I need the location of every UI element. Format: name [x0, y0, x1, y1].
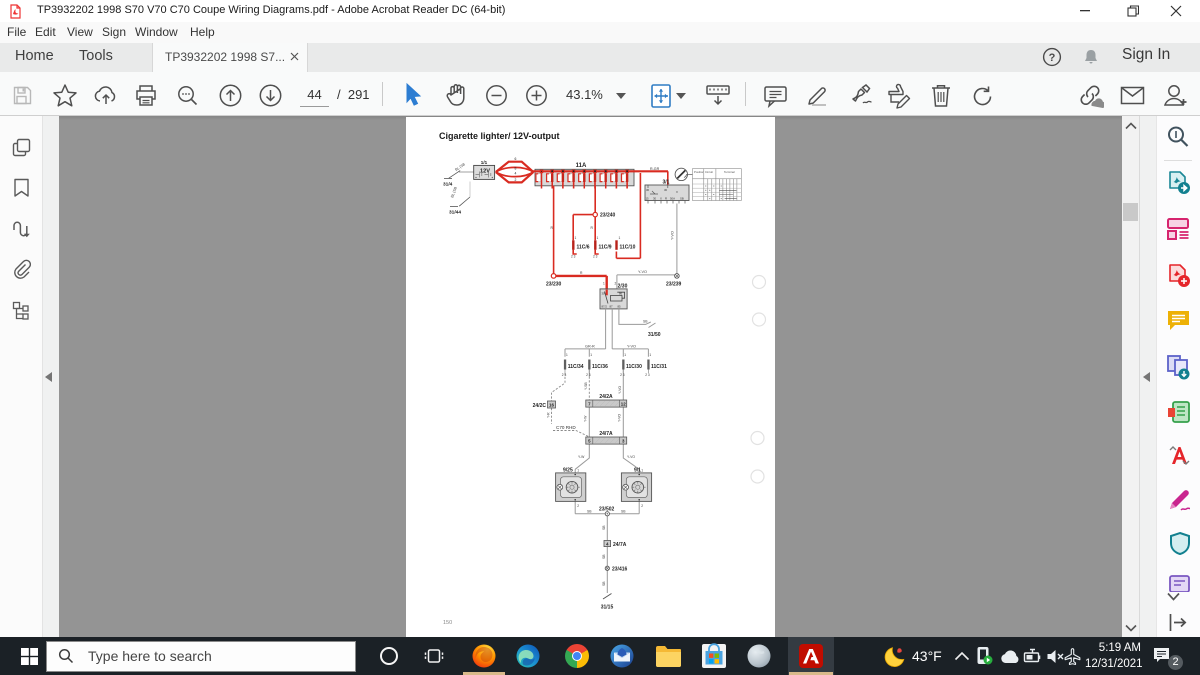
svg-text:30: 30: [602, 292, 606, 296]
svg-text:15: 15: [646, 197, 650, 201]
svg-text:11C/31: 11C/31: [651, 364, 667, 370]
svg-text:24/7A: 24/7A: [599, 431, 613, 437]
svg-text:Y-VO: Y-VO: [618, 414, 622, 422]
svg-text:R-GR: R-GR: [650, 167, 660, 171]
svg-text:150: 150: [443, 620, 452, 626]
svg-text:1: 1: [590, 353, 592, 357]
svg-text:Terminal: Terminal: [724, 170, 735, 174]
svg-text:12: 12: [621, 402, 626, 407]
svg-text:2 3: 2 3: [586, 373, 591, 377]
svg-text:Position: Position: [694, 170, 704, 174]
svg-text:50A: 50A: [670, 197, 675, 201]
svg-text:Y-VO: Y-VO: [627, 344, 636, 348]
svg-text:Y-VO: Y-VO: [638, 270, 647, 274]
svg-text:SB: SB: [587, 510, 592, 514]
svg-text:SB: SB: [602, 581, 606, 586]
svg-text:SB: SB: [680, 197, 684, 201]
svg-text:Y-W: Y-W: [584, 415, 588, 422]
svg-text:2 3: 2 3: [593, 255, 598, 259]
svg-text:11C/34: 11C/34: [568, 364, 584, 370]
svg-text:R: R: [665, 197, 667, 201]
svg-text:30: 30: [664, 188, 668, 192]
svg-text:Circuit: Circuit: [705, 170, 713, 174]
svg-text:11C/36: 11C/36: [592, 364, 608, 370]
svg-text:Cigarette lighter/ 12V-output: Cigarette lighter/ 12V-output: [439, 131, 560, 141]
svg-text:2: 2: [577, 504, 579, 508]
svg-text:BL (SB: BL (SB: [454, 162, 466, 172]
svg-text:Y-W: Y-W: [578, 455, 585, 459]
svg-text:1: 1: [577, 469, 579, 473]
svg-text:23/230: 23/230: [546, 282, 562, 288]
svg-text:23/239: 23/239: [666, 282, 682, 288]
svg-text:23/502: 23/502: [599, 507, 615, 513]
svg-text:C70 RHD: C70 RHD: [556, 425, 576, 430]
svg-text:16: 16: [549, 403, 554, 408]
svg-text:30: 30: [653, 197, 657, 201]
svg-text:Y-VO: Y-VO: [627, 455, 635, 459]
svg-text:BL (SB: BL (SB: [450, 186, 458, 199]
svg-text:Y-VO: Y-VO: [618, 386, 622, 394]
svg-text:2: 2: [515, 178, 517, 182]
svg-text:2 3: 2 3: [571, 255, 576, 259]
svg-text:Y-VO: Y-VO: [671, 231, 675, 240]
svg-text:1: 1: [603, 282, 605, 286]
svg-text:86: 86: [619, 292, 623, 296]
svg-text:85: 85: [618, 305, 622, 309]
svg-text:SB: SB: [602, 554, 606, 559]
svg-text:Y-SB: Y-SB: [584, 382, 588, 390]
svg-text:9/25: 9/25: [563, 467, 573, 473]
svg-text:8: 8: [515, 167, 517, 171]
svg-text:1: 1: [624, 353, 626, 357]
svg-text:2 3: 2 3: [620, 373, 625, 377]
svg-text:1: 1: [641, 469, 643, 473]
svg-text:87: 87: [610, 305, 614, 309]
svg-text:9/1: 9/1: [634, 467, 641, 473]
svg-text:11C/6: 11C/6: [577, 245, 590, 251]
svg-text:1: 1: [619, 236, 621, 240]
svg-text:24/7A: 24/7A: [613, 542, 627, 548]
svg-text:2 3: 2 3: [645, 373, 650, 377]
svg-text:31/44: 31/44: [449, 210, 461, 216]
svg-text:23/240: 23/240: [600, 213, 616, 219]
svg-text:31/50: 31/50: [648, 332, 661, 338]
svg-text:SB: SB: [643, 320, 648, 324]
svg-text:31/4: 31/4: [443, 182, 453, 188]
svg-text:31/15: 31/15: [601, 605, 614, 611]
svg-text:11A: 11A: [576, 163, 587, 169]
svg-text:6: 6: [515, 157, 517, 161]
svg-text:2: 2: [615, 282, 617, 286]
svg-text:24/2A: 24/2A: [599, 394, 613, 400]
svg-text:87/2: 87/2: [602, 305, 608, 309]
svg-text:2/30: 2/30: [618, 284, 628, 290]
svg-text:30: 30: [646, 188, 650, 192]
svg-text:1: 1: [566, 353, 568, 357]
svg-text:3/1: 3/1: [663, 180, 670, 186]
svg-text:2 3: 2 3: [562, 373, 567, 377]
svg-text:X: X: [660, 197, 662, 201]
svg-text:R: R: [580, 271, 583, 275]
svg-text:X: X: [676, 190, 678, 194]
svg-text:1: 1: [575, 236, 577, 240]
svg-text:23/416: 23/416: [612, 567, 628, 573]
svg-text:Y-R: Y-R: [547, 412, 551, 418]
svg-text:11C/30: 11C/30: [626, 364, 642, 370]
svg-text:24/2C: 24/2C: [533, 403, 547, 409]
svg-text:11C/9: 11C/9: [599, 245, 612, 251]
svg-text:GR-R: GR-R: [585, 344, 595, 348]
svg-text:SB: SB: [602, 525, 606, 530]
svg-text:1: 1: [649, 353, 651, 357]
svg-text:1: 1: [597, 236, 599, 240]
svg-text:4: 4: [515, 172, 517, 176]
svg-text:11C/10: 11C/10: [620, 245, 636, 251]
svg-text:2: 2: [641, 504, 643, 508]
svg-text:R: R: [591, 226, 594, 230]
svg-text:SB: SB: [621, 510, 626, 514]
svg-text:1/1: 1/1: [481, 160, 488, 165]
